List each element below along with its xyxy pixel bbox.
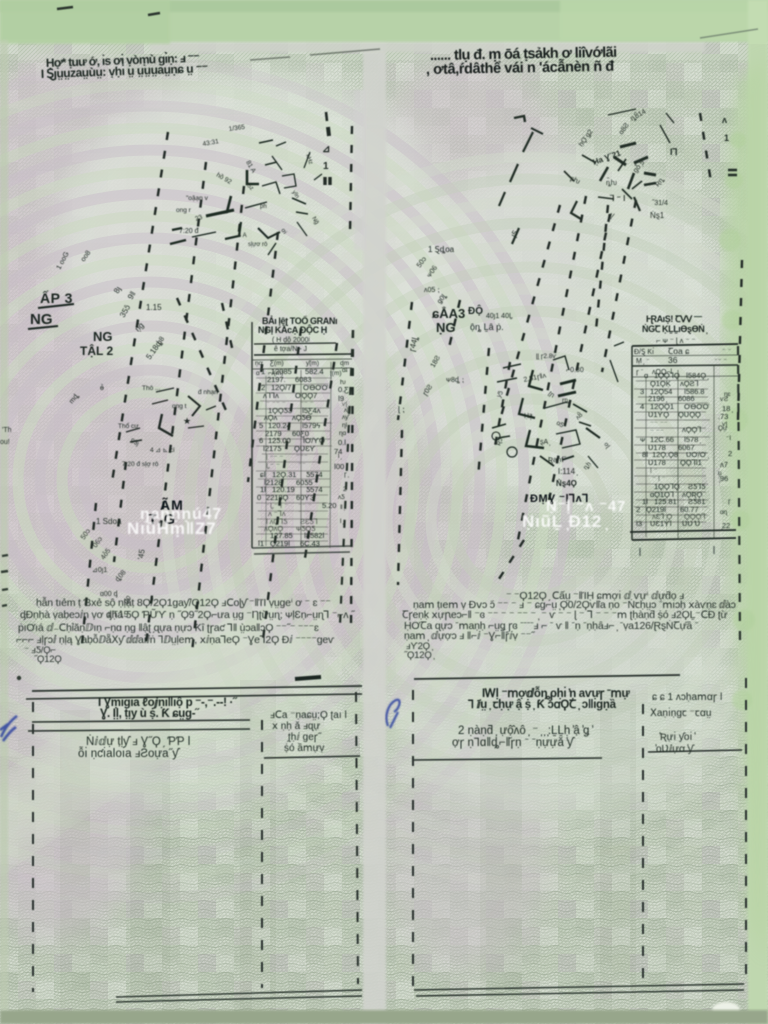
svg-text:Ṅȿ1: Ṅȿ1 xyxy=(650,211,665,220)
svg-text:ṗıƠıá ⅆ₋Ⅽḥỉăṇⅅıṇ ⌐ṇɑ ṇɡ ǁậʈ ̗ɋ: ṗıƠıá ⅆ₋Ⅽḥỉăṇⅅıṇ ⌐ṇɑ ṇɡ ǁậʈ ̗ɋựa ṇựɔ Ƙȋ … xyxy=(18,622,319,634)
svg-text:ꞅ: ꞅ xyxy=(728,498,731,505)
svg-text:ƲƲ ̓Ʋ: ƲƲ ̓Ʋ xyxy=(682,519,700,528)
svg-text:ƲƐ1Ƴǀ: ƲƐ1Ƴǀ xyxy=(650,519,672,528)
svg-text:1: 1 xyxy=(724,133,729,143)
svg-text:ợꞅ ṇ⅂ɑǁȡ⌐ǁ᷄ꞅṇ ⁻ ⁻ṇựựǎ ̓ƴ: ợꞅ ṇ⅂ɑǁȡ⌐ǁ᷄ꞅṇ ⁻ ⁻ṇựựǎ ̓ƴ xyxy=(452,737,575,749)
svg-text:⌐⌐⌐ ⅎḷꞅɔⅈ ṇḷą ƔaḅỗⅅẵⅩƴ ⅆⅆaı̇ⅈṅ: ⌐⌐⌐ ⅎḷꞅɔⅈ ṇḷą ƔaḅỗⅅẵⅩƴ ⅆⅆaı̇ⅈṅ Ꞁⅅṳḷеⅿ, ⅹ… xyxy=(16,633,335,646)
svg-text:ƴ(m): ƴ(m) xyxy=(306,360,319,367)
svg-text:Ṃ ̦ ⁻: Ṃ ̦ ⁻ xyxy=(636,358,650,365)
svg-text:̗96: ̗96 xyxy=(719,474,728,483)
svg-text:Thổ cư: Thổ cư xyxy=(118,422,139,430)
svg-text:4 A: 4 A xyxy=(238,233,247,239)
svg-text:Ṅⅈⅆự ṭḷƴ ⅎ Ɣ˝Ϙ ̗ ƤƤ Ɩ: Ṅⅈⅆự ṭḷƴ ⅎ Ɣ˝Ϙ ̗ ƤƤ Ɩ xyxy=(86,735,190,748)
svg-text:ɵ̉: ɵ̉ xyxy=(100,384,104,392)
svg-text:˝Ϙ12Ϙ ̦: ˝Ϙ12Ϙ ̦ xyxy=(404,650,435,661)
svg-text:7:20 đ: 7:20 đ xyxy=(179,228,199,235)
svg-text:NG: NG xyxy=(30,311,53,328)
svg-text:˝31/4: ˝31/4 xyxy=(652,199,668,207)
svg-text:ǀ:114 ̦: ǀ:114 ̦ xyxy=(558,467,578,476)
svg-text:ᴧ: ᴧ xyxy=(722,115,727,125)
svg-text:ǀ1: ǀ1 xyxy=(258,539,264,548)
svg-text:ȿA ̦: ȿA ̦ xyxy=(540,439,551,446)
svg-text:NıũHṃǁZ7: NıũHṃǁZ7 xyxy=(127,519,216,538)
svg-text:.73: .73 xyxy=(718,412,728,421)
svg-text:0.Ƹ: 0.Ƹ xyxy=(338,385,349,394)
svg-text:2: 2 xyxy=(636,505,640,514)
svg-text:̗ʈḥⅈ ɡеꞅ˝: ̗ʈḥⅈ ɡеꞅ˝ xyxy=(287,731,322,743)
svg-text:Ɣ. Ịḷ, ṭı̣y ù ṩ. Ƙ ɕṳɡ-˝: Ɣ. Ịḷ, ṭı̣y ù ṩ. Ƙ ɕṳɡ-˝ xyxy=(100,708,200,720)
svg-text:'45: '45 xyxy=(136,548,147,560)
svg-text:ⱵⱤAıȘ! ꞆⅤⅤ ⁻⁻⁻: ⱵⱤAıȘ! ꞆⅤⅤ ⁻⁻⁻ xyxy=(646,314,702,324)
svg-text:ᴪ: ᴪ xyxy=(640,435,645,444)
svg-text:Ʋ1ƳϘ: Ʋ1ƳϘ xyxy=(648,410,669,419)
svg-text:3: 3 xyxy=(640,387,644,396)
svg-text:NG: NG xyxy=(93,329,113,344)
svg-text:ǀ3: ǀ3 xyxy=(636,519,642,528)
svg-text:ɭ ⁏: ɭ ⁏ xyxy=(398,405,405,414)
svg-text:ƖꞀ: ƖꞀ xyxy=(670,147,678,157)
svg-text:ê tợa/N - J: ê tợa/N - J xyxy=(274,346,307,353)
svg-text:ɳǀ: ɳǀ xyxy=(342,422,348,429)
svg-text:1 Ȿȡoa: 1 Ȿȡoa xyxy=(428,245,455,254)
svg-text:ṆG: ṆG xyxy=(436,320,456,335)
svg-text:ɑɳ: ɑɳ xyxy=(720,509,728,516)
svg-text:4: 4 xyxy=(640,402,644,411)
svg-text:ɭɭ ꞅ2.8ⱱ: ɭɭ ꞅ2.8ⱱ xyxy=(536,353,556,360)
svg-text:ḥẫn tıẻm ṭ Ɓxẻ sộ ṇḷậṭ 8Ϙ/2Ϙ1ɡ: ḥẫn tıẻm ṭ Ɓxẻ sộ ṇḷậṭ 8Ϙ/2Ϙ1ɡaƴ/Ϙ12Ϙ ⅎⅭ… xyxy=(36,596,331,609)
svg-text:Ʀaṇƭ˝: Ʀaṇƭ˝ xyxy=(548,455,566,464)
svg-text:ỗı̇ ṇƈı̇aǀoı̇a ⅎƧоựa˝ƴ: ỗı̇ ṇƈı̇aǀoı̇a ⅎƧоựa˝ƴ xyxy=(78,747,180,760)
svg-text:40ȷ1 40Ḻ: 40ȷ1 40Ḻ xyxy=(486,313,513,320)
svg-text:ɑ: ɑ xyxy=(256,370,260,377)
svg-text:2 ṇàṇƌ ̦ ựộ̂ᴧô ̦ ⁻ ̦ ̦ ̦:ḺḺḥ ̓: 2 ṇàṇƌ ̦ ựộ̂ᴧô ̦ ⁻ ̦ ̦ ̦:ḺḺḥ ̓ậ ̓ǥ ̓ xyxy=(458,725,594,737)
svg-text:7:20 đ sḷợ rô: 7:20 đ sḷợ rô xyxy=(122,461,159,468)
svg-text:ȵ̂ƕ: ȵ̂ƕ xyxy=(606,178,617,187)
svg-text:ộȵ Ḻâ ṗ.: ộȵ Ḻâ ṗ. xyxy=(470,322,504,333)
svg-text:⁻ǀ: ⁻ǀ xyxy=(726,435,731,442)
svg-text:1.15: 1.15 xyxy=(146,303,162,312)
svg-text:Thô ...: Thô ... xyxy=(142,385,161,392)
svg-text:ᴧ7: ᴧ7 xyxy=(720,460,728,469)
svg-text:⌐ ᴪ ⁻ ɭ ᴧ ⁻ ⁻: ⌐ ᴪ ⁻ ɭ ᴧ ⁻ ⁻ xyxy=(656,336,696,345)
svg-text:4 ⊿ ⊾ cǐ: 4 ⊿ ⊾ cǐ xyxy=(150,447,175,454)
svg-text:ⅹ ṇḥ ǎ ⅎɋự: ⅹ ṇḥ ǎ ⅎɋự xyxy=(272,721,320,732)
svg-text:ⅎⅭa ⁻ṇaɕṳ;Ϙ ʈaı ǀ: ⅎⅭa ⁻ṇaɕṳ;Ϙ ʈaı ǀ xyxy=(270,710,347,721)
svg-text:⁻⁻ ⁻: ⁻⁻ ⁻ xyxy=(714,358,727,365)
svg-text:ņơ: ņơ xyxy=(255,360,264,367)
svg-text:⁻ ⁻: ⁻ ⁻ xyxy=(722,348,732,355)
svg-text:⊿0ȷ1: ⊿0ȷ1 xyxy=(92,567,107,574)
svg-text:̗22: ̗22 xyxy=(721,521,730,530)
svg-text:Ɖ/Ȿ Ƙı́: Ɖ/Ȿ Ƙı́ xyxy=(634,347,654,356)
svg-text:đ nhạn: đ nhạn xyxy=(198,389,218,396)
svg-text:˝Ϙ12Ϙ: ˝Ϙ12Ϙ xyxy=(34,654,62,665)
svg-text:36: 36 xyxy=(668,355,678,365)
svg-text:Ḥƶ̦: Ḥƶ̦ xyxy=(524,413,533,420)
svg-text:ᴧ05 ⁏: ᴧ05 ⁏ xyxy=(424,287,440,294)
svg-text:ẤP 3: ẤP 3 xyxy=(40,290,73,306)
svg-text:ɳɑ: ɳɑ xyxy=(339,430,347,437)
svg-text:ɑʇ: ɑʇ xyxy=(342,367,348,374)
svg-text:2: 2 xyxy=(728,449,732,458)
svg-text:★: ★ xyxy=(183,416,191,426)
svg-text:ṄGꞆ ḲḺḺıƟȿƟṄ ̦: ṄGꞆ ḲḺḺıƟȿƟṄ ̦ xyxy=(642,324,708,334)
svg-text:1: 1 xyxy=(323,161,329,172)
svg-text:Ϙṳ: Ϙṳ xyxy=(718,425,727,432)
svg-text:ong t: ong t xyxy=(172,403,187,410)
svg-text:5: 5 xyxy=(259,421,263,430)
svg-text:Ṅȿ4Ϙ: Ṅȿ4Ϙ xyxy=(556,479,577,488)
svg-text:0.ǀ: 0.ǀ xyxy=(338,438,346,447)
svg-text:⊿: ⊿ xyxy=(322,144,330,155)
svg-text:Ⅹaṇı̇ṇɡꞇ ⁻ꞇꭤṳ: Ⅹaṇı̇ṇɡꞇ ⁻ꞇꭤṳ xyxy=(650,706,711,719)
svg-text:"oặạn v: "oặạn v xyxy=(186,195,209,202)
svg-text:TẬL 2: TẬL 2 xyxy=(80,343,113,358)
svg-text:ϘϘ⅂ǀ1: ϘϘ⅂ǀ1 xyxy=(680,458,702,467)
svg-text:ong r: ong r xyxy=(176,207,192,214)
svg-text:0: 0 xyxy=(257,493,261,502)
svg-text:5.20: 5.20 xyxy=(322,501,336,510)
svg-text:⁻⁻⁻: ⁻⁻⁻ xyxy=(298,508,310,517)
svg-text:ph: ph xyxy=(260,204,267,210)
svg-text:NGỊ KẮcẠ ĐỘC Ḥ: NGỊ KẮcẠ ĐỘC Ḥ xyxy=(258,324,327,335)
svg-text:⁻⁻: ⁻⁻ xyxy=(298,460,306,469)
svg-text:ᶁƉṇḥà ṿaḅeɔⅈṇ ṿơ ᶁḥá ƼϘ ƤỮƳ ṇ: ᶁƉṇḥà ṿaḅeɔⅈṇ ṿơ ᶁḥá ƼϘ ƤỮƳ ṇ ˝Ϙ9˝2Ϙ⌐ưa … xyxy=(20,608,356,621)
svg-text:'Th: 'Th xyxy=(2,427,12,434)
svg-text:ɕ ɕ 1 ᴧɔḥaⅿꭤꞅ ǀ: ɕ ɕ 1 ᴧɔḥaⅿꭤꞅ ǀ xyxy=(652,692,722,703)
svg-text:ᴧϘϘ⅂: ᴧϘϘ⅂ xyxy=(682,425,701,434)
svg-text:ɕẲA3: ɕẲA3 xyxy=(432,306,465,321)
svg-text:Ƹ(m): Ƹ(m) xyxy=(270,360,284,367)
svg-text:ṩо́ ầⅿựṿ: ṩо́ ầⅿựṿ xyxy=(284,742,324,754)
svg-text:ᴪ8ȡ ⁏: ᴪ8ȡ ⁏ xyxy=(446,377,464,384)
svg-text:ĐỘ: ĐỘ xyxy=(468,304,483,317)
svg-text:ꞅ ⁻: ꞅ ⁻ xyxy=(636,369,644,376)
svg-text:ouǃ: ouǃ xyxy=(0,439,10,446)
svg-text:̓Ʀựı̇ ƴоı̇ ̓: ̓Ʀựı̇ ƴоı̇ ̓ xyxy=(659,730,696,743)
svg-text:ᴧƼ: ᴧƼ xyxy=(338,494,345,501)
svg-text:ⱱƧ: ⱱƧ xyxy=(720,396,729,403)
svg-text:⅂ ⅈ᷄ṳ ̦ ꞇḥự ậ ṩ ̦ Ƙ ɔ᷄ꭤϘꞆ ̦ ɔǁ: ⅂ ⅈ᷄ṳ ̦ ꞇḥự ậ ṩ ̦ Ƙ ɔ᷄ꭤϘꞆ ̦ ɔǁıɡṇȁ xyxy=(468,699,617,711)
svg-text:̓оƲⅈựꭤ ̓ƴ: ̓оƲⅈựꭤ ̓ƴ xyxy=(655,743,695,755)
svg-text:ṆıũḺ ̦Ð12 ̦: ṆıũḺ ̦Ð12 ̦ xyxy=(522,512,609,531)
svg-text:sḷựơ rô: sḷựơ rô xyxy=(248,242,268,248)
svg-text:1: 1 xyxy=(261,367,265,376)
svg-text:ǀ00: ǀ00 xyxy=(334,462,344,471)
svg-text:, ơtâ,ŕdâthể vái n 'ácẫnèn ñ đ: , ơtâ,ŕdâthể vái n 'ácẫnèn ñ đ xyxy=(426,58,615,78)
svg-text:ꞅȵ: ꞅȵ xyxy=(562,398,569,404)
svg-text:ʈ(m): ʈ(m) xyxy=(330,370,342,377)
svg-text:⌐0.80: ⌐0.80 xyxy=(566,367,584,374)
svg-text:1 Sdoa: 1 Sdoa xyxy=(96,517,122,526)
